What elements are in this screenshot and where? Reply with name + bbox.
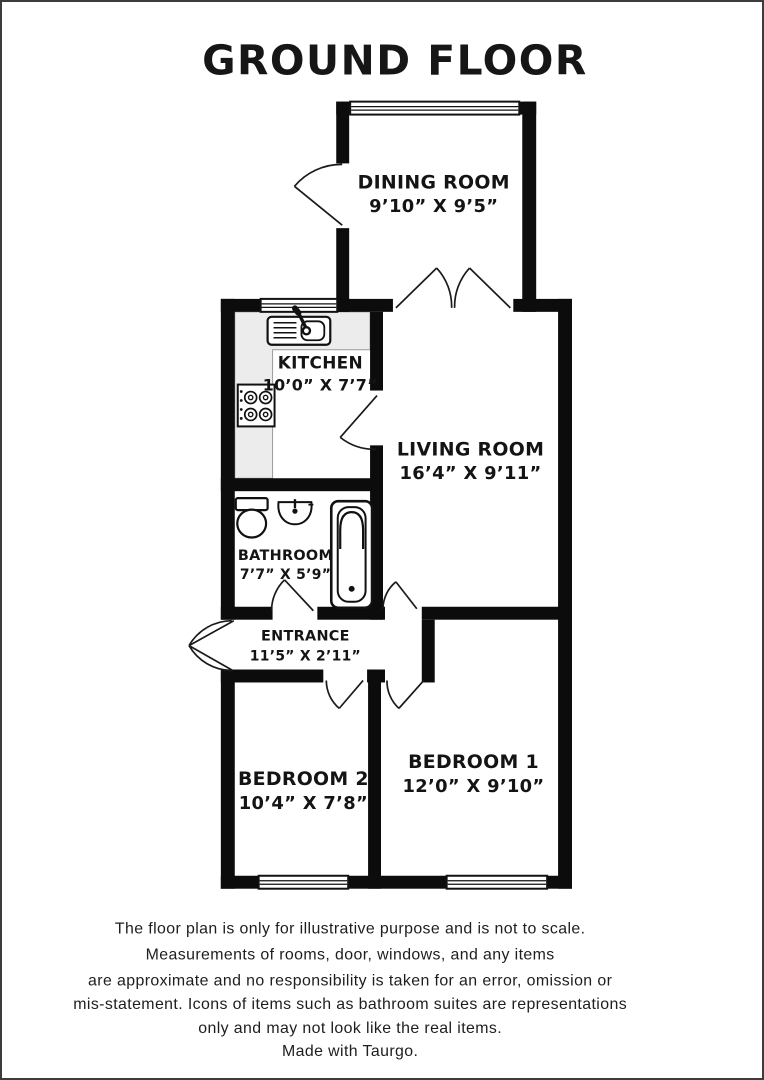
wall [221, 478, 383, 491]
bedroom1-dimensions: 12’0” X 9’10” [403, 776, 545, 797]
floorplan-drawing: GROUND FLOOR [2, 2, 762, 1078]
living-room-dimensions: 16’4” X 9’11” [400, 463, 542, 484]
dining-room-label: DINING ROOM 9’10” X 9’5” [358, 171, 510, 217]
wall [522, 102, 536, 312]
living-room-door-arc [383, 582, 417, 609]
disclaimer-line: only and may not look like the real item… [198, 1020, 502, 1037]
toilet-icon [236, 498, 268, 537]
dining-room-window [350, 102, 519, 115]
kitchen-label: KITCHEN 10’0” X 7’7” [263, 353, 378, 395]
wall [368, 670, 381, 889]
bedroom1-window [447, 876, 547, 889]
bedroom1-name: BEDROOM 1 [408, 751, 539, 773]
bedroom2-window [259, 876, 349, 889]
floorplan-page: GROUND FLOOR [0, 0, 764, 1080]
page-title: GROUND FLOOR [202, 37, 588, 85]
wall [422, 620, 435, 683]
bedroom2-dimensions: 10’4” X 7’8” [239, 793, 368, 814]
disclaimer-line: are approximate and no responsibility is… [88, 972, 613, 989]
dining-room-dimensions: 9’10” X 9’5” [369, 196, 498, 217]
bathtub-icon [331, 501, 372, 608]
bedroom2-name: BEDROOM 2 [238, 768, 369, 790]
wall [336, 102, 349, 164]
bathroom-door-arc [272, 580, 314, 611]
entrance-name: ENTRANCE [261, 629, 350, 645]
wall [422, 607, 559, 620]
wall [221, 672, 235, 889]
wall [221, 607, 273, 620]
bathroom-label: BATHROOM 7’7” X 5’9” [238, 548, 333, 583]
kitchen-dimensions: 10’0” X 7’7” [263, 376, 378, 395]
bedroom2-door-arc [326, 680, 363, 708]
wall [336, 299, 393, 312]
french-doors-arc [396, 268, 510, 308]
wall [221, 299, 235, 620]
disclaimer: The floor plan is only for illustrative … [73, 921, 627, 1061]
disclaimer-line: Measurements of rooms, door, windows, an… [146, 946, 555, 963]
entrance-dimensions: 11’5” X 2’11” [250, 649, 361, 665]
front-door-arc [189, 621, 234, 671]
disclaimer-line: The floor plan is only for illustrative … [115, 921, 586, 938]
bedroom1-door-arc [387, 680, 424, 708]
bathroom-name: BATHROOM [238, 548, 333, 564]
dining-exterior-door-arc [294, 164, 342, 225]
wall [221, 670, 323, 683]
room-labels: DINING ROOM 9’10” X 9’5” KITCHEN 10’0” X… [238, 171, 545, 814]
kitchen-door-arc [340, 396, 377, 450]
bedroom2-label: BEDROOM 2 10’4” X 7’8” [238, 768, 369, 814]
living-room-name: LIVING ROOM [397, 438, 544, 460]
kitchen-name: KITCHEN [278, 353, 363, 373]
disclaimer-line: Made with Taurgo. [282, 1043, 418, 1060]
entrance-label: ENTRANCE 11’5” X 2’11” [250, 629, 361, 665]
dining-room-name: DINING ROOM [358, 171, 510, 193]
disclaimer-line: mis-statement. Icons of items such as ba… [73, 996, 627, 1013]
bedroom1-label: BEDROOM 1 12’0” X 9’10” [403, 751, 545, 797]
wall [558, 299, 572, 889]
bathroom-dimensions: 7’7” X 5’9” [240, 567, 331, 583]
basin-icon [278, 499, 313, 524]
living-room-label: LIVING ROOM 16’4” X 9’11” [397, 438, 544, 484]
